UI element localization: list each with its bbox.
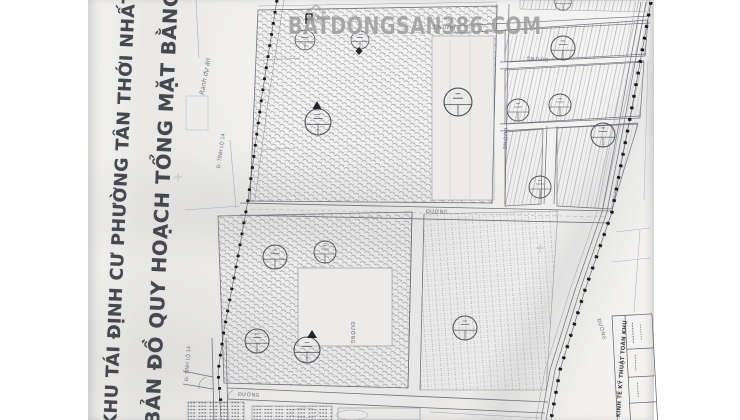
lot-columns-bottom-middle [408, 211, 558, 390]
registration-cross [174, 173, 182, 181]
road-label: ĐƯỜNG [433, 23, 455, 30]
map-photo: BATDONGSAN386.COM KHU TÁI ĐỊNH CƯ PHƯỜNG… [0, 0, 740, 420]
road-label: ĐƯỜNG [349, 322, 355, 344]
road-label: ĐƯỜNG [501, 128, 508, 150]
superblock-bottom-left [218, 212, 412, 388]
road-label: ĐƯỜNG [238, 392, 260, 399]
road-label: ĐƯỜNG [426, 209, 448, 216]
watermark-text: BATDONGSAN386.COM [288, 12, 542, 40]
margin-faint-lines [185, 0, 240, 210]
